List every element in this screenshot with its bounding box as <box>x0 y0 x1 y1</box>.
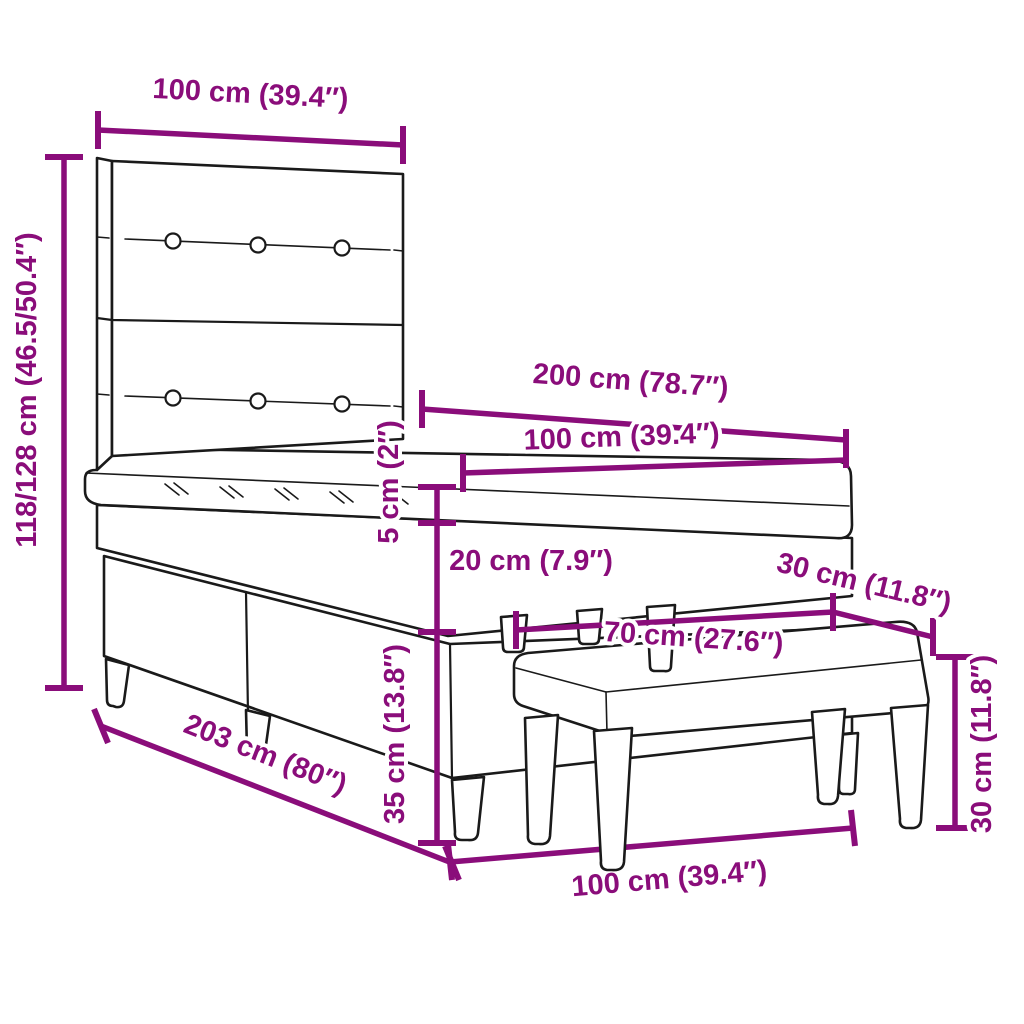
dim-label-topper-height: 5 cm (2″) <box>373 420 405 544</box>
button-icon <box>166 391 181 406</box>
button-icon <box>335 397 350 412</box>
bench-leg <box>525 715 558 844</box>
headboard-front-panel <box>112 161 403 456</box>
bench-cushion-corner-seam <box>606 692 607 733</box>
dim-label-bench-height: 30 cm (11.8″) <box>966 655 998 833</box>
button-icon <box>251 394 266 409</box>
bed-leg <box>106 659 129 707</box>
button-icon <box>335 241 350 256</box>
button-icon <box>251 238 266 253</box>
bench-leg <box>891 705 928 828</box>
dim-label-base-height: 35 cm (13.8″) <box>379 644 411 824</box>
bed-leg <box>452 777 484 840</box>
dim-label-bed-length: 200 cm (78.7″) <box>532 358 730 404</box>
dim-label-bench-depth: 30 cm (11.8″) <box>774 547 955 620</box>
dim-label-total-height: 118/128 cm (46.5/50.4″) <box>11 232 43 547</box>
dim-label-headboard-width: 100 cm (39.4″) <box>152 73 349 115</box>
diagram-canvas: 100 cm (39.4″) 118/128 cm (46.5/50.4″) 2… <box>0 0 1024 1024</box>
button-icon <box>166 234 181 249</box>
dimension-diagram: 100 cm (39.4″) 118/128 cm (46.5/50.4″) 2… <box>0 0 1024 1024</box>
dim-line-headboard-width <box>98 130 403 145</box>
dim-label-bed-width: 100 cm (39.4″) <box>523 417 720 457</box>
dim-line-foot-end-width <box>450 828 853 862</box>
dim-label-mattress-height: 20 cm (7.9″) <box>449 545 613 577</box>
headboard-side-edge <box>97 158 112 470</box>
